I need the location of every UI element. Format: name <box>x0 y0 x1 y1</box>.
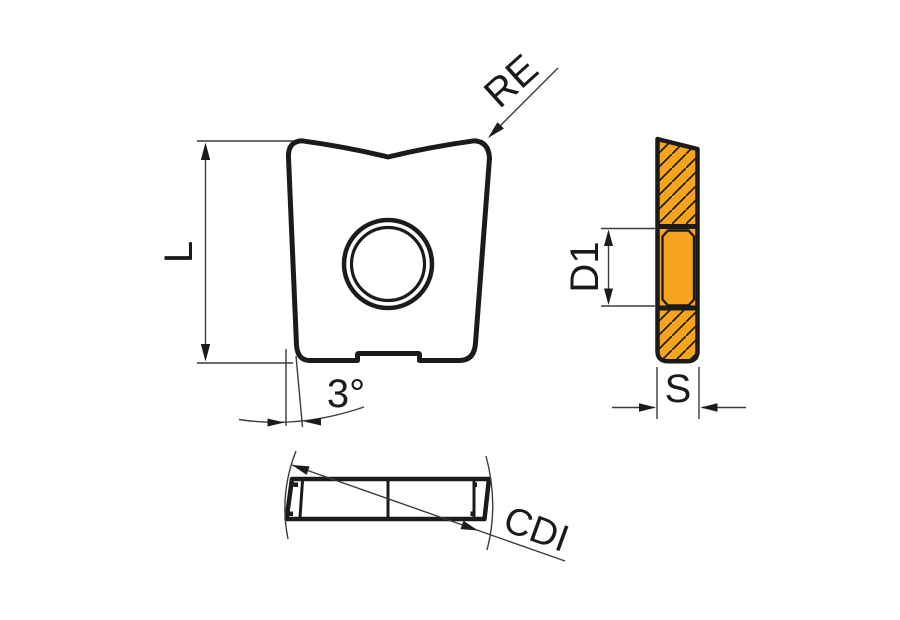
arrowhead-right <box>639 403 656 412</box>
arrowhead-left <box>304 418 321 426</box>
bore-profile <box>663 231 695 306</box>
corner-mark <box>289 512 294 517</box>
arrowhead-up <box>201 143 210 161</box>
label-RE: RE <box>476 46 547 116</box>
arrowhead-right <box>268 419 285 427</box>
dimension-L: L <box>157 141 293 363</box>
dimension-S: S <box>612 367 746 419</box>
label-D1: D1 <box>563 241 607 292</box>
corner-mark <box>471 512 476 517</box>
label-S: S <box>665 367 692 411</box>
corner-mark <box>473 483 478 488</box>
arrowhead-downright <box>461 521 479 531</box>
section-hatch-top <box>658 139 698 224</box>
label-CDI: CDI <box>498 499 574 561</box>
side-view <box>656 139 700 361</box>
section-hatch-bottom <box>658 310 698 361</box>
drawing-svg: L RE 3° D1 <box>0 0 900 620</box>
label-3deg: 3° <box>327 372 365 416</box>
insert-technical-drawing: L RE 3° D1 <box>0 0 900 620</box>
arrowhead-down <box>201 344 210 362</box>
center-hole <box>352 228 425 301</box>
front-view <box>288 141 489 361</box>
arrowhead-upleft <box>292 465 310 475</box>
dimension-D1: D1 <box>563 229 655 307</box>
dimension-CDI: CDI <box>285 451 574 561</box>
arrowhead-left <box>701 403 718 412</box>
corner-mark <box>294 483 299 488</box>
label-L: L <box>157 241 201 263</box>
edge-extension-line <box>296 356 303 427</box>
facet-divider-left <box>300 481 303 518</box>
callout-RE: RE <box>476 46 558 138</box>
